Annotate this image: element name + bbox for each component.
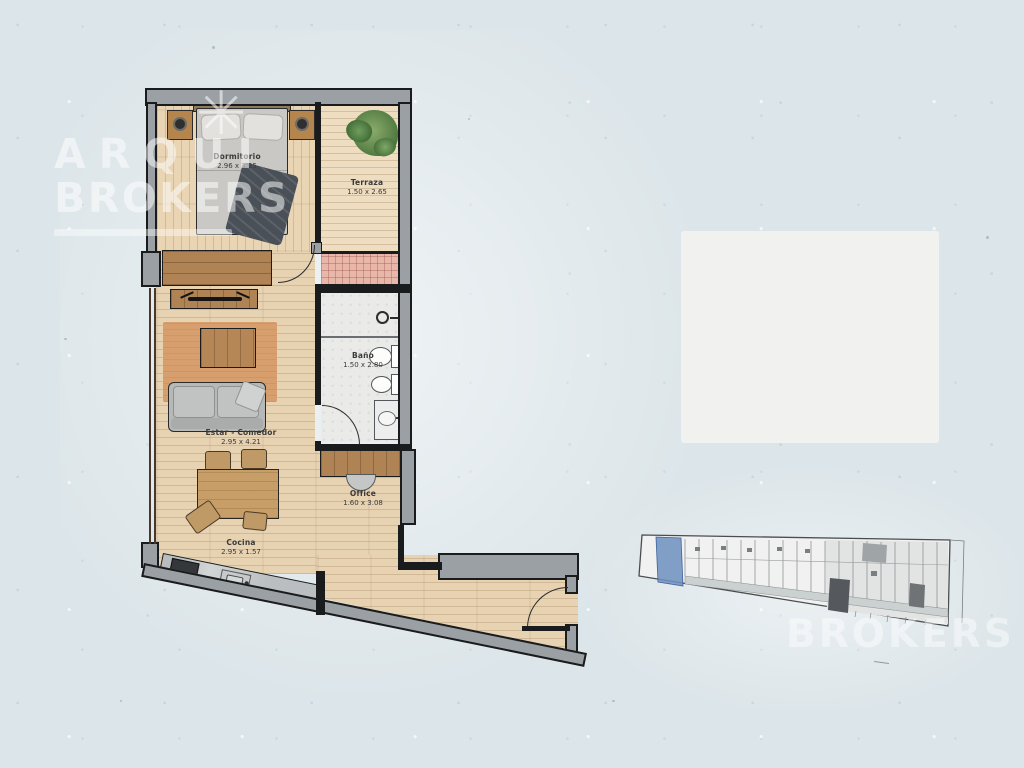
- wall-terrace-tile-top: [321, 251, 399, 254]
- vanity-basin: [378, 411, 396, 426]
- wall-right-bathroom: [398, 290, 412, 451]
- window-glazing-line: [154, 288, 156, 544]
- asterisk-logo-icon: ✳: [196, 84, 246, 144]
- room-name: Cocina: [221, 538, 261, 548]
- paper-speck: [986, 236, 989, 239]
- wall-corridor-top: [438, 553, 579, 580]
- watermark-subtitle-bar: [54, 229, 232, 236]
- wall-left-pillar-mid: [141, 251, 161, 287]
- dining-chair: [242, 511, 268, 531]
- tv-icon: [188, 297, 242, 301]
- wall-right-terrace: [398, 102, 412, 292]
- office-desk: [320, 447, 402, 477]
- wall-bathroom-top: [315, 284, 412, 293]
- dining-chair: [241, 449, 267, 469]
- label-terraza: Terraza 1.50 x 2.65: [347, 178, 387, 197]
- room-name: Office: [343, 489, 383, 499]
- entry-door-leaf: [522, 626, 570, 631]
- dining-chair: [205, 451, 231, 471]
- watermark-brokers-bottom: BROKERS: [786, 612, 1015, 657]
- paper-speck: [612, 700, 615, 702]
- room-dimensions: 1.60 x 3.08: [343, 499, 383, 508]
- room-dimensions: 2.95 x 1.57: [221, 548, 261, 557]
- nightstand-lamp-icon: [173, 117, 187, 131]
- label-estar-comedor: Estar - Comedor 2.95 x 4.21: [205, 428, 276, 447]
- watermark-line2: BROKERS: [54, 176, 274, 220]
- keyplan-highlighted-unit: [656, 537, 683, 586]
- paper-speck: [64, 338, 67, 340]
- nightstand-lamp-icon: [295, 117, 309, 131]
- paper-speck: [120, 700, 122, 702]
- wall-bathroom-bottom: [315, 444, 412, 451]
- wall-top: [145, 88, 412, 106]
- room-name: Baño: [343, 351, 383, 361]
- blank-white-panel: [681, 231, 939, 443]
- wall-kitchen-end: [316, 571, 325, 615]
- keyplan-side-extension: [950, 540, 964, 623]
- paper-speck: [468, 118, 470, 120]
- wall-right-office: [400, 449, 416, 525]
- wall-bedroom-terrace-divider: [315, 102, 321, 244]
- label-cocina: Cocina 2.95 x 1.57: [221, 538, 261, 557]
- window-glazing-line: [149, 288, 151, 544]
- paper-speck: [212, 46, 215, 49]
- label-office: Office 1.60 x 3.08: [343, 489, 383, 508]
- shower-divider: [321, 336, 398, 338]
- floor-terrace-tile: [321, 253, 399, 285]
- room-dimensions: 2.95 x 4.21: [205, 438, 276, 447]
- label-bano: Baño 1.50 x 2.80: [343, 351, 383, 370]
- room-dimensions: 1.50 x 2.80: [343, 361, 383, 370]
- shower-head-icon: [376, 311, 389, 324]
- wall-bathroom-left: [315, 293, 321, 405]
- bidet-bowl: [371, 376, 392, 393]
- floor-plan-page: Dormitorio 2.96 x 3.25 Terraza 1.50 x 2.…: [0, 0, 1024, 768]
- room-dimensions: 1.50 x 2.65: [347, 188, 387, 197]
- room-name: Estar - Comedor: [205, 428, 276, 438]
- coffee-table: [200, 328, 256, 368]
- wall-office-corridor-horizontal: [398, 562, 442, 570]
- room-name: Terraza: [347, 178, 387, 188]
- wardrobe-closet: [162, 250, 272, 286]
- sofa-cushion: [173, 386, 215, 418]
